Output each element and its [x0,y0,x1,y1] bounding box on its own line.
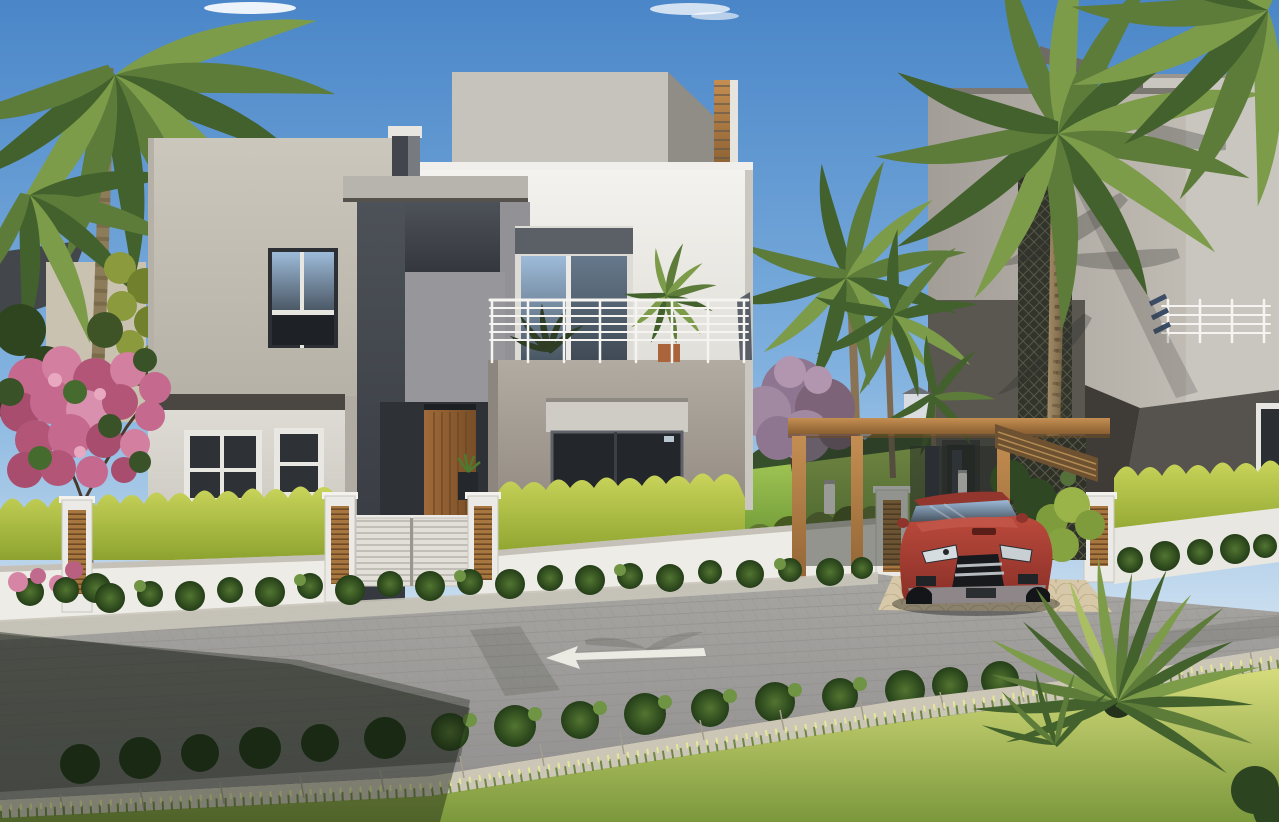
bollard-light [824,480,835,514]
license-plate [966,588,996,598]
cloud [691,12,739,20]
fog-light [1018,574,1038,584]
bedroom-window [268,248,338,348]
side-mirror [1016,513,1028,523]
plant-pot [658,344,680,362]
tower-cap [343,176,528,200]
architectural-render [0,0,1279,822]
pergola-beam [788,418,1110,434]
floor-band [148,394,345,410]
hood-vent [972,528,996,535]
entrance-gate [356,515,468,586]
villa-street-scene [0,0,1279,822]
side-mirror [897,518,909,528]
cloud [204,2,296,14]
grille [952,554,1004,588]
fog-light [916,576,936,586]
